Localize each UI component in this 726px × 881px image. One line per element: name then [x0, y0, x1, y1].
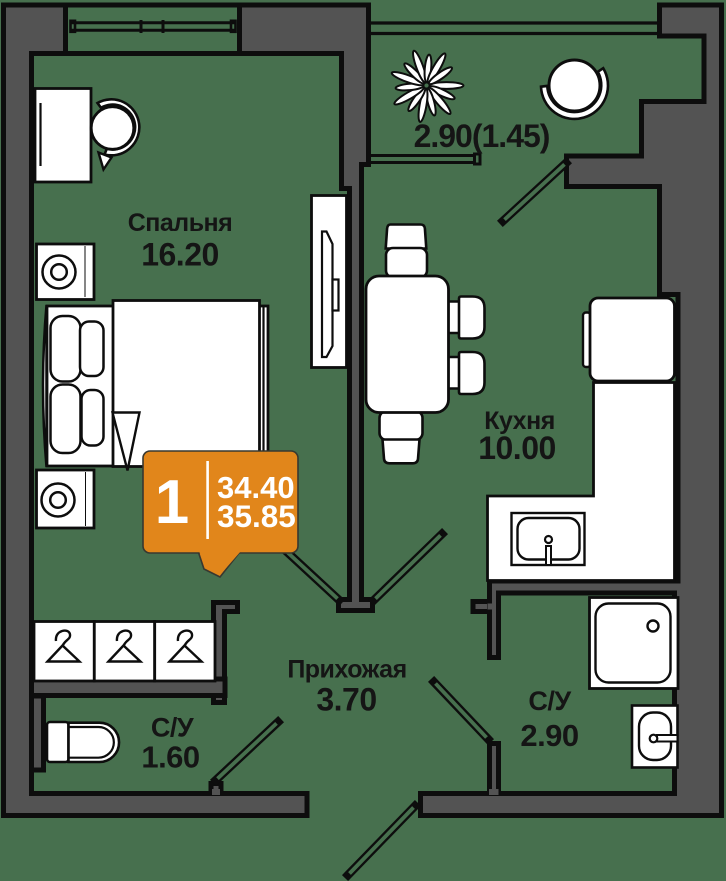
svg-text:3.70: 3.70	[316, 682, 376, 718]
svg-text:С/У: С/У	[528, 686, 572, 716]
svg-text:С/У: С/У	[151, 713, 195, 743]
svg-text:Спальня: Спальня	[128, 209, 233, 237]
svg-text:Прихожая: Прихожая	[287, 656, 406, 684]
svg-text:10.00: 10.00	[478, 430, 556, 466]
svg-text:16.20: 16.20	[141, 237, 219, 273]
svg-text:1.60: 1.60	[141, 740, 199, 775]
svg-text:1: 1	[155, 468, 189, 537]
svg-text:35.85: 35.85	[217, 498, 296, 534]
svg-text:2.90: 2.90	[520, 718, 578, 753]
svg-text:2.90(1.45): 2.90(1.45)	[414, 118, 550, 154]
